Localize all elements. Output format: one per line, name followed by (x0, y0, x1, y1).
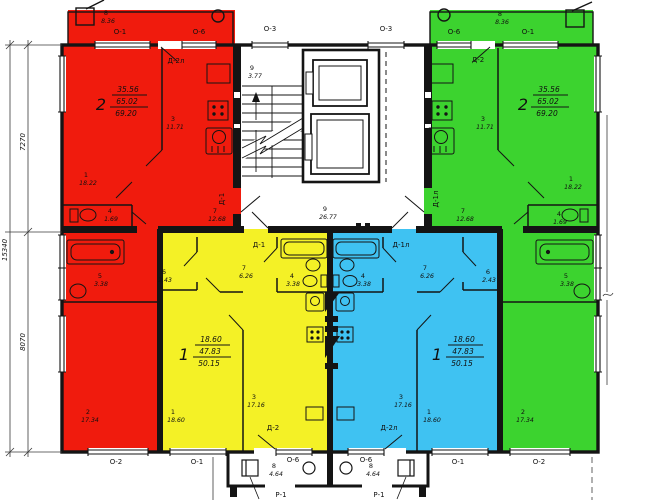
door-label: Р-1 (373, 491, 384, 499)
svg-text:17.34: 17.34 (81, 417, 99, 424)
door-label: Д-2л (381, 424, 398, 432)
svg-text:18.22: 18.22 (564, 184, 582, 191)
window-label: О-2 (110, 458, 123, 466)
svg-text:4: 4 (361, 272, 365, 280)
window-label: О-1 (522, 28, 535, 36)
red-total-area: 65.02 (116, 97, 138, 106)
svg-text:6: 6 (486, 268, 490, 276)
svg-text:12.68: 12.68 (208, 216, 226, 223)
svg-text:3.38: 3.38 (94, 281, 108, 288)
svg-text:65.02: 65.02 (537, 97, 559, 106)
door-label: Д-2 (267, 424, 279, 432)
elevator-shafts (303, 50, 386, 182)
svg-text:35.56: 35.56 (538, 85, 560, 94)
svg-text:3: 3 (252, 393, 256, 401)
door-label: Д-2 (472, 56, 484, 64)
svg-text:7: 7 (423, 264, 427, 272)
green-balcony-area: 8.36 (495, 19, 509, 26)
svg-text:5: 5 (564, 272, 568, 280)
window-label: О-6 (287, 456, 300, 464)
svg-text:6.26: 6.26 (420, 273, 434, 280)
door-label: Д-1 (253, 241, 265, 249)
svg-text:18.60: 18.60 (200, 335, 222, 344)
svg-text:4: 4 (290, 272, 294, 280)
red-living-area: 35.56 (117, 85, 139, 94)
window-label: О-3 (380, 25, 393, 33)
window-label: О-6 (448, 28, 461, 36)
yellow-flat-number: 1 (179, 345, 189, 364)
svg-text:3: 3 (399, 393, 403, 401)
svg-text:1: 1 (569, 175, 573, 183)
red-balcony-area: 8.36 (101, 18, 115, 25)
svg-text:50.15: 50.15 (198, 359, 220, 368)
flat-yellow-highlight (160, 229, 330, 452)
svg-text:7: 7 (213, 207, 217, 215)
door-label: Д-1л (432, 191, 440, 208)
red-flat-number: 2 (96, 95, 106, 114)
svg-text:3: 3 (481, 115, 485, 123)
svg-text:5: 5 (98, 272, 102, 280)
vestibule-area: 4.64 (366, 471, 380, 478)
red-overall-area: 69.20 (115, 109, 137, 118)
svg-text:7: 7 (242, 264, 246, 272)
svg-text:18.60: 18.60 (453, 335, 475, 344)
svg-text:1.69: 1.69 (104, 216, 118, 223)
door-label: Д-1л (393, 241, 410, 249)
svg-text:47.83: 47.83 (199, 347, 221, 356)
svg-text:17.34: 17.34 (516, 417, 534, 424)
corridor-number: 9 (323, 205, 327, 213)
svg-text:2.43: 2.43 (482, 277, 496, 284)
window-label: О-2 (533, 458, 546, 466)
vestibule-number: 8 (272, 462, 276, 470)
svg-text:2: 2 (521, 408, 525, 416)
door-label: Д-1 (218, 193, 226, 205)
svg-text:3.38: 3.38 (357, 281, 371, 288)
window-label: О-1 (114, 28, 127, 36)
floor-plan-drawing: 8 8.36 8 8.36 О-1 О-6 О-3 О-3 О-6 О-1 Д-… (0, 0, 650, 500)
svg-text:11.71: 11.71 (476, 124, 494, 131)
door-label: Д-2л (168, 57, 185, 65)
svg-text:69.20: 69.20 (536, 109, 558, 118)
corridor-area: 26.77 (319, 214, 337, 221)
green-flat-number: 2 (518, 95, 528, 114)
svg-text:4: 4 (108, 207, 112, 215)
blue-flat-number: 1 (432, 345, 442, 364)
vestibule-number: 8 (369, 462, 373, 470)
svg-text:50.15: 50.15 (451, 359, 473, 368)
door-label: Р-1 (275, 491, 286, 499)
svg-text:2: 2 (86, 408, 90, 416)
svg-text:17.16: 17.16 (247, 402, 265, 409)
dim-upper: 7270 (19, 133, 27, 151)
vestibule-area: 4.64 (269, 471, 283, 478)
svg-text:4: 4 (557, 210, 561, 218)
stairs-area: 3.77 (248, 73, 262, 80)
window-label: О-1 (191, 458, 204, 466)
dim-lower: 8070 (19, 333, 27, 351)
svg-text:3.38: 3.38 (560, 281, 574, 288)
svg-text:1: 1 (84, 171, 88, 179)
svg-text:2.43: 2.43 (158, 277, 172, 284)
floor-plan: 8 8.36 8 8.36 О-1 О-6 О-3 О-3 О-6 О-1 Д-… (0, 0, 650, 500)
dim-overall: 15340 (1, 238, 9, 261)
green-balcony-number: 8 (498, 10, 502, 18)
window-label: О-1 (452, 458, 465, 466)
svg-text:18.60: 18.60 (423, 417, 441, 424)
svg-text:12.68: 12.68 (456, 216, 474, 223)
svg-text:17.16: 17.16 (394, 402, 412, 409)
vestibules (228, 452, 428, 499)
svg-text:3.38: 3.38 (286, 281, 300, 288)
staircase (242, 86, 303, 178)
red-balcony-number: 8 (104, 9, 108, 17)
svg-text:1: 1 (427, 408, 431, 416)
svg-text:11.71: 11.71 (166, 124, 184, 131)
svg-text:6: 6 (162, 268, 166, 276)
svg-text:1.69: 1.69 (553, 219, 567, 226)
svg-text:1: 1 (171, 408, 175, 416)
svg-text:3: 3 (171, 115, 175, 123)
window-label: О-3 (264, 25, 277, 33)
stairs-number: 9 (250, 64, 254, 72)
svg-text:6.26: 6.26 (239, 273, 253, 280)
window-label: О-6 (193, 28, 206, 36)
svg-text:18.60: 18.60 (167, 417, 185, 424)
svg-text:18.22: 18.22 (79, 180, 97, 187)
svg-text:7: 7 (461, 207, 465, 215)
svg-text:47.83: 47.83 (452, 347, 474, 356)
